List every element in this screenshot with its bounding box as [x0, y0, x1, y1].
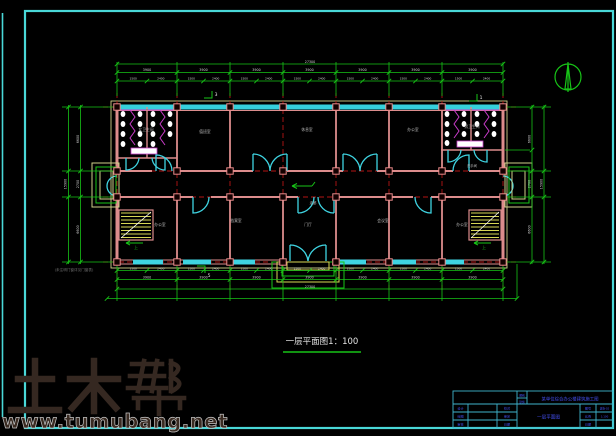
- stair-left: [119, 210, 153, 245]
- column-marker: [227, 194, 233, 200]
- titleblock-text: 绘图: [457, 414, 463, 419]
- section-marker-number: 5: [208, 273, 211, 279]
- column-marker: [333, 259, 339, 265]
- titleblock-text: 设计: [457, 406, 463, 411]
- dim-text: 1500: [455, 77, 463, 81]
- column-marker: [439, 168, 445, 174]
- room-label: 男卫生间: [464, 124, 479, 129]
- dim-text: 1500: [455, 267, 463, 271]
- dim-text: 1500: [400, 77, 408, 81]
- dim-text: 2400: [424, 77, 432, 81]
- column-marker: [500, 259, 506, 265]
- column-marker: [439, 259, 445, 265]
- titleblock-text: 图别: [519, 393, 525, 397]
- section-marker-number: 3: [215, 92, 218, 98]
- dim-text: 2400: [483, 267, 491, 271]
- column-marker: [500, 168, 506, 174]
- dim-text: 3900: [358, 276, 366, 280]
- direction-arrow: [292, 182, 315, 189]
- corridor-walls: [117, 171, 503, 197]
- titleblock-text: 日期: [504, 422, 510, 427]
- drawing-title: 一层平面图1：100: [286, 337, 359, 347]
- cad-viewport: 3900390015002400150024003900390015002400…: [0, 0, 616, 436]
- titleblock-text: 审核: [457, 422, 463, 427]
- room-label: 办公室: [154, 222, 166, 227]
- dim-text: 3900: [252, 68, 260, 72]
- dim-text: 2400: [212, 267, 220, 271]
- titleblock-project: 某单位综合办公楼建筑施工图: [541, 395, 599, 402]
- dim-text: 3900: [468, 68, 476, 72]
- room-label: 会议室: [377, 218, 389, 223]
- column-marker: [333, 104, 339, 110]
- dim-text: 2700: [528, 180, 532, 188]
- dim-text: 3900: [468, 276, 476, 280]
- dim-text: 1500: [130, 267, 138, 271]
- column-marker: [333, 194, 339, 200]
- column-marker: [227, 168, 233, 174]
- dim-text: 2400: [371, 77, 379, 81]
- dimension-lines: [62, 62, 551, 301]
- dim-text: 1500: [294, 267, 302, 271]
- column-marker: [280, 259, 286, 265]
- titleblock-text: 图号: [585, 406, 591, 411]
- dim-text: 3900: [143, 68, 151, 72]
- stair-right: [469, 210, 501, 245]
- room-label: (未注明门窗详见门窗表): [55, 267, 94, 272]
- dim-text: 6600: [76, 135, 80, 143]
- column-marker: [500, 104, 506, 110]
- titleblock-text: 建施-02: [600, 407, 610, 411]
- dim-text: 2700: [76, 180, 80, 188]
- dim-text: 3900: [199, 276, 207, 280]
- titleblock-text: 审定: [504, 414, 510, 419]
- dim-text: 2400: [318, 77, 326, 81]
- column-marker: [386, 194, 392, 200]
- doors: [107, 150, 513, 261]
- column-marker: [386, 168, 392, 174]
- dim-text: 27300: [305, 60, 316, 64]
- dim-text: 2400: [157, 77, 165, 81]
- column-marker: [114, 259, 120, 265]
- north-arrow-icon: [555, 62, 581, 92]
- room-label: 休息室: [301, 127, 313, 132]
- column-marker: [174, 168, 180, 174]
- column-marker: [333, 168, 339, 174]
- column-marker: [174, 259, 180, 265]
- dim-text: 15900: [540, 179, 544, 190]
- watermark-url: www.tumubang.net: [2, 410, 228, 433]
- section-marker-number: 1: [480, 95, 483, 101]
- titleblock-text: 1:100: [601, 415, 609, 419]
- dim-text: 2400: [212, 77, 220, 81]
- room-label: 上: [482, 244, 486, 250]
- column-marker: [114, 194, 120, 200]
- dim-text: 2400: [424, 267, 432, 271]
- column-marker: [227, 259, 233, 265]
- dim-text: 2400: [265, 77, 273, 81]
- dim-text: 1500: [294, 77, 302, 81]
- dim-text: 3900: [252, 276, 260, 280]
- room-label: 办公室: [407, 127, 419, 132]
- column-marker: [386, 104, 392, 110]
- dim-text: 1500: [241, 77, 249, 81]
- dim-text: 1500: [130, 77, 138, 81]
- column-marker: [174, 104, 180, 110]
- section-markers: [197, 91, 477, 273]
- dim-text: 1500: [347, 77, 355, 81]
- dim-text: 3900: [143, 276, 151, 280]
- floor-plan-canvas: 3900390015002400150024003900390015002400…: [0, 0, 616, 436]
- dim-text: 3900: [411, 276, 419, 280]
- column-marker: [386, 259, 392, 265]
- room-label: 走廊: [310, 200, 317, 205]
- dim-text: 1500: [400, 267, 408, 271]
- dim-text: 6600: [528, 135, 532, 143]
- column-marker: [227, 104, 233, 110]
- dim-text: 3900: [411, 68, 419, 72]
- watermark-logo: [11, 361, 184, 414]
- room-label: 办公室: [456, 222, 468, 227]
- room-label: 洗手间: [467, 163, 478, 168]
- column-marker: [280, 194, 286, 200]
- room-label: 女卫生间: [138, 127, 153, 132]
- dim-text: 2400: [318, 267, 326, 271]
- room-label: 上: [134, 244, 138, 250]
- dim-text: 3900: [305, 276, 313, 280]
- room-label: 门厅: [304, 222, 312, 227]
- dim-text: 27300: [305, 285, 316, 289]
- dim-text: 3900: [199, 68, 207, 72]
- column-marker: [114, 168, 120, 174]
- column-marker: [174, 194, 180, 200]
- column-marker: [439, 194, 445, 200]
- titleblock-text: 比例: [585, 414, 591, 419]
- titleblock-text: 日期: [585, 422, 591, 427]
- room-label: 值班室: [199, 129, 211, 134]
- dim-text: 1500: [241, 267, 249, 271]
- dim-text: 3900: [358, 68, 366, 72]
- room-label: 档案室: [230, 218, 242, 223]
- column-marker: [439, 104, 445, 110]
- dim-text: 2400: [265, 267, 273, 271]
- dim-text: 3900: [305, 68, 313, 72]
- dim-text: 1500: [188, 77, 196, 81]
- dim-text: 2400: [157, 267, 165, 271]
- column-marker: [280, 168, 286, 174]
- dim-text: 2400: [371, 267, 379, 271]
- column-marker: [280, 104, 286, 110]
- titleblock-text: 建施: [519, 400, 525, 404]
- titleblock-drawing-name: 一层平面图: [537, 414, 560, 420]
- dim-text: 15900: [64, 179, 68, 190]
- dim-text: 6600: [528, 225, 532, 233]
- column-marker: [114, 104, 120, 110]
- dim-text: 1500: [188, 267, 196, 271]
- titleblock-text: 校对: [504, 406, 510, 411]
- dim-text: 2400: [483, 77, 491, 81]
- dim-text: 6600: [76, 225, 80, 233]
- dim-text: 1500: [347, 267, 355, 271]
- column-marker: [500, 194, 506, 200]
